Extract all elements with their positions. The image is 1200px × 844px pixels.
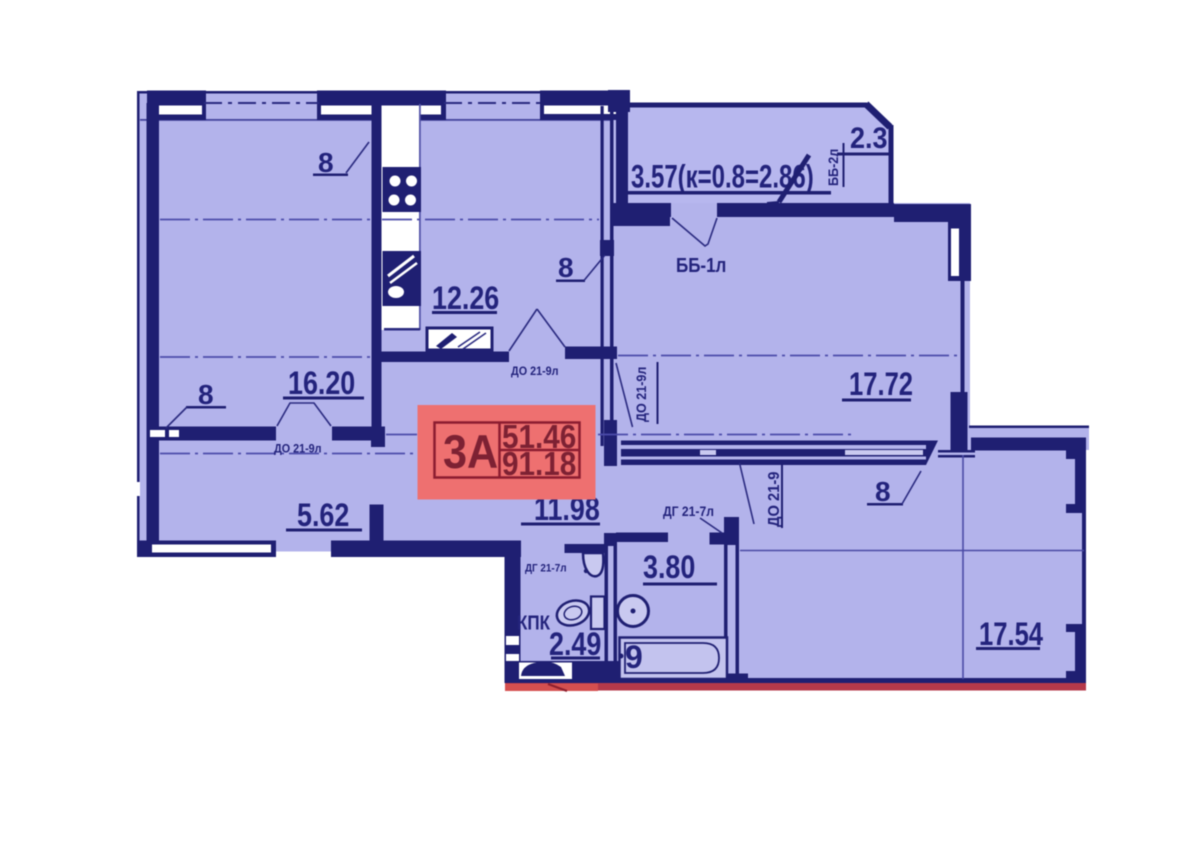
svg-text:16.20: 16.20 [288, 366, 355, 402]
svg-text:ДО 21-9: ДО 21-9 [766, 472, 783, 527]
svg-text:3А: 3А [443, 425, 498, 478]
svg-text:8: 8 [558, 252, 574, 283]
svg-text:8: 8 [875, 476, 891, 507]
svg-text:ДО 21-9л: ДО 21-9л [633, 367, 649, 422]
svg-text:8: 8 [318, 147, 334, 178]
svg-text:91.18: 91.18 [502, 446, 576, 483]
svg-text:3.80: 3.80 [643, 550, 695, 586]
svg-text:ДГ 21-7л: ДГ 21-7л [663, 503, 714, 519]
svg-text:ДО 21-9л: ДО 21-9л [274, 443, 322, 456]
svg-text:КПК: КПК [517, 611, 551, 634]
svg-text:9: 9 [625, 639, 643, 675]
svg-text:5.62: 5.62 [297, 498, 349, 534]
svg-text:ДГ 21-7л: ДГ 21-7л [525, 563, 566, 575]
svg-text:ББ-1л: ББ-1л [676, 254, 726, 277]
svg-text:8: 8 [198, 379, 214, 410]
svg-text:ББ-2л: ББ-2л [825, 149, 841, 186]
svg-text:2.3: 2.3 [850, 122, 888, 156]
svg-text:17.72: 17.72 [849, 367, 913, 402]
svg-text:ДО 21-9л: ДО 21-9л [511, 366, 559, 379]
